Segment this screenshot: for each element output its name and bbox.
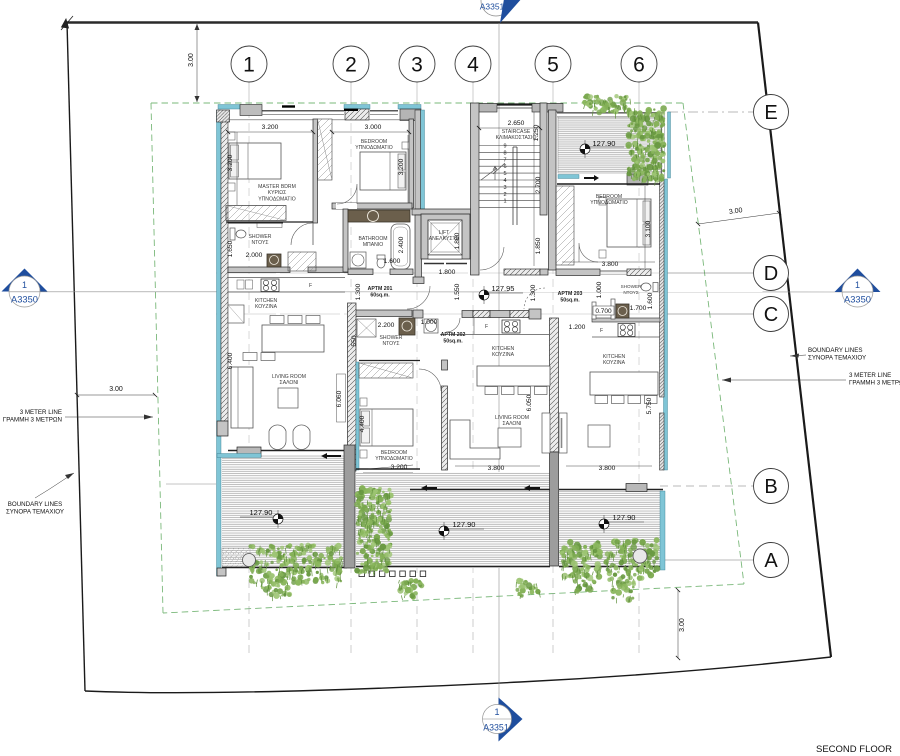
svg-text:2.650: 2.650	[508, 120, 525, 127]
svg-text:ΓΡΑΜΜΗ 3 ΜΕΤΡΩΝ: ΓΡΑΜΜΗ 3 ΜΕΤΡΩΝ	[849, 380, 900, 387]
svg-text:3 METER LINE: 3 METER LINE	[849, 372, 891, 379]
svg-text:2: 2	[345, 54, 357, 77]
svg-text:F: F	[309, 283, 312, 289]
svg-text:3.00: 3.00	[109, 386, 123, 393]
svg-text:F: F	[600, 328, 603, 334]
svg-text:1.850: 1.850	[535, 237, 542, 254]
svg-text:A3351: A3351	[483, 723, 509, 733]
svg-text:SHOWER: SHOWER	[380, 335, 403, 341]
svg-text:1.550: 1.550	[454, 283, 461, 300]
svg-text:ΓΡΑΜΜΗ 3 ΜΕΤΡΩΝ: ΓΡΑΜΜΗ 3 ΜΕΤΡΩΝ	[3, 417, 62, 424]
svg-text:ΣΥΝΟΡΑ ΤΕΜΑΧΙΟΥ: ΣΥΝΟΡΑ ΤΕΜΑΧΙΟΥ	[6, 509, 64, 516]
svg-text:127.90: 127.90	[593, 139, 616, 148]
svg-text:4: 4	[503, 178, 506, 184]
svg-text:9: 9	[503, 144, 506, 150]
svg-text:127.90: 127.90	[613, 513, 636, 522]
svg-text:LIVING ROOM: LIVING ROOM	[495, 415, 529, 421]
svg-text:A3350: A3350	[844, 295, 871, 305]
svg-text:2.000: 2.000	[246, 252, 263, 259]
svg-text:5.750: 5.750	[646, 397, 653, 414]
svg-text:2.700: 2.700	[535, 176, 542, 193]
svg-text:1.800: 1.800	[454, 232, 461, 249]
svg-text:ΣΑΛΟΝΙ: ΣΑΛΟΝΙ	[503, 421, 522, 427]
svg-text:60sq.m.: 60sq.m.	[370, 293, 390, 299]
svg-text:ΜΠΑΝΙΟ: ΜΠΑΝΙΟ	[363, 242, 383, 248]
svg-text:ΚΛΙΜΑΚΟΣΤΑΣΙΟ: ΚΛΙΜΑΚΟΣΤΑΣΙΟ	[496, 135, 537, 141]
svg-text:SECOND FLOOR: SECOND FLOOR	[816, 744, 892, 755]
svg-text:4.400: 4.400	[359, 415, 366, 432]
svg-text:BATHROOM: BATHROOM	[358, 236, 387, 242]
svg-text:ΚΥΡΙΩΣ: ΚΥΡΙΩΣ	[268, 190, 287, 196]
svg-text:KITCHEN: KITCHEN	[492, 346, 515, 352]
svg-text:E: E	[764, 102, 777, 124]
svg-text:APTM 203: APTM 203	[558, 291, 583, 297]
svg-text:550: 550	[351, 335, 358, 346]
svg-text:ΣΥΝΟΡΑ ΤΕΜΑΧΙΟΥ: ΣΥΝΟΡΑ ΤΕΜΑΧΙΟΥ	[808, 355, 866, 362]
svg-text:KITCHEN: KITCHEN	[603, 354, 626, 360]
svg-text:F: F	[485, 324, 488, 330]
svg-text:BOUNDARY LINES: BOUNDARY LINES	[808, 347, 862, 354]
svg-text:3.200: 3.200	[391, 464, 408, 471]
svg-text:BEDROOM: BEDROOM	[381, 450, 407, 456]
svg-text:6.060: 6.060	[336, 390, 343, 407]
svg-text:SHOWER: SHOWER	[621, 284, 642, 289]
svg-text:3 METER LINE: 3 METER LINE	[20, 409, 62, 416]
svg-text:ΝΤΟΥΣ: ΝΤΟΥΣ	[623, 290, 639, 295]
svg-text:2: 2	[503, 192, 506, 198]
svg-text:ΚΟΥΖΙΝΑ: ΚΟΥΖΙΝΑ	[492, 352, 515, 358]
svg-text:3.00: 3.00	[188, 53, 195, 67]
svg-text:A: A	[764, 550, 778, 572]
svg-text:50sq.m.: 50sq.m.	[560, 298, 580, 304]
svg-text:1: 1	[494, 707, 499, 717]
svg-text:3.200: 3.200	[398, 158, 405, 175]
svg-text:127.90: 127.90	[453, 520, 476, 529]
svg-text:3.200: 3.200	[262, 124, 279, 131]
svg-text:1.650: 1.650	[227, 240, 234, 257]
svg-text:1.000: 1.000	[596, 281, 603, 298]
svg-text:6.050: 6.050	[526, 394, 533, 411]
svg-text:LIFT: LIFT	[439, 230, 449, 236]
svg-text:ΥΠΝΟΔΩΜΑΤΙΟ: ΥΠΝΟΔΩΜΑΤΙΟ	[258, 196, 296, 202]
svg-text:127.95: 127.95	[492, 284, 515, 293]
svg-text:3.100: 3.100	[645, 220, 652, 237]
svg-text:MASTER BDRM: MASTER BDRM	[258, 184, 296, 190]
svg-text:APTM 202: APTM 202	[441, 332, 466, 338]
svg-text:KITCHEN: KITCHEN	[255, 298, 278, 304]
svg-text:A3351: A3351	[480, 2, 505, 12]
svg-text:C: C	[764, 304, 778, 326]
svg-text:BEDROOM: BEDROOM	[361, 139, 387, 145]
svg-text:3.00: 3.00	[679, 618, 686, 632]
svg-text:6: 6	[633, 54, 645, 77]
svg-text:D: D	[764, 263, 778, 285]
svg-text:1.600: 1.600	[384, 258, 401, 265]
svg-text:1.600: 1.600	[647, 292, 654, 309]
svg-text:8: 8	[503, 150, 506, 156]
svg-text:ΥΠΝΟΔΩΜΑΤΙΟ: ΥΠΝΟΔΩΜΑΤΙΟ	[355, 145, 393, 151]
svg-text:1.800: 1.800	[439, 269, 456, 276]
svg-text:1.200: 1.200	[569, 324, 586, 331]
svg-text:LIVING ROOM: LIVING ROOM	[272, 374, 306, 380]
svg-text:1.700: 1.700	[630, 305, 647, 312]
svg-text:6: 6	[503, 164, 506, 170]
svg-text:BEDROOM: BEDROOM	[596, 194, 622, 200]
svg-text:ΥΠΝΟΔΩΜΑΤΙΟ: ΥΠΝΟΔΩΜΑΤΙΟ	[375, 456, 413, 462]
svg-text:0.700: 0.700	[595, 308, 612, 315]
svg-text:1.300: 1.300	[355, 283, 362, 300]
svg-text:SHOWER: SHOWER	[249, 234, 272, 240]
svg-text:B: B	[764, 476, 777, 498]
svg-text:STAIRCASE: STAIRCASE	[502, 129, 531, 135]
svg-text:5: 5	[503, 171, 506, 177]
svg-text:A3350: A3350	[11, 295, 38, 305]
svg-text:ΝΤΟΥΣ: ΝΤΟΥΣ	[382, 341, 399, 347]
svg-text:2.400: 2.400	[398, 236, 405, 253]
svg-text:1: 1	[243, 54, 255, 77]
svg-text:3.000: 3.000	[365, 124, 382, 131]
svg-text:1: 1	[503, 199, 506, 205]
svg-text:ΚΟΥΖΙΝΑ: ΚΟΥΖΙΝΑ	[255, 304, 278, 310]
svg-text:127.90: 127.90	[250, 508, 273, 517]
svg-text:1.300: 1.300	[530, 284, 537, 301]
svg-text:ΚΟΥΖΙΝΑ: ΚΟΥΖΙΝΑ	[603, 360, 626, 366]
svg-text:6.400: 6.400	[227, 352, 234, 369]
svg-text:7: 7	[503, 157, 506, 163]
svg-text:2.200: 2.200	[378, 322, 395, 329]
svg-text:ΥΠΝΟΔΩΜΑΤΙΟ: ΥΠΝΟΔΩΜΑΤΙΟ	[590, 200, 628, 206]
svg-text:BOUNDARY LINES: BOUNDARY LINES	[8, 501, 62, 508]
svg-text:3.200: 3.200	[227, 154, 234, 171]
svg-text:ΝΤΟΥΣ: ΝΤΟΥΣ	[251, 240, 268, 246]
svg-text:3: 3	[503, 185, 506, 191]
svg-text:APTM 201: APTM 201	[368, 286, 393, 292]
svg-text:3: 3	[411, 54, 423, 77]
svg-text:1: 1	[22, 280, 27, 290]
svg-text:50sq.m.: 50sq.m.	[443, 339, 463, 345]
svg-text:5: 5	[547, 54, 559, 77]
svg-text:1: 1	[855, 280, 860, 290]
svg-text:ΣΑΛΟΝΙ: ΣΑΛΟΝΙ	[280, 380, 299, 386]
svg-text:4: 4	[467, 54, 479, 77]
svg-text:1.000: 1.000	[421, 319, 438, 326]
